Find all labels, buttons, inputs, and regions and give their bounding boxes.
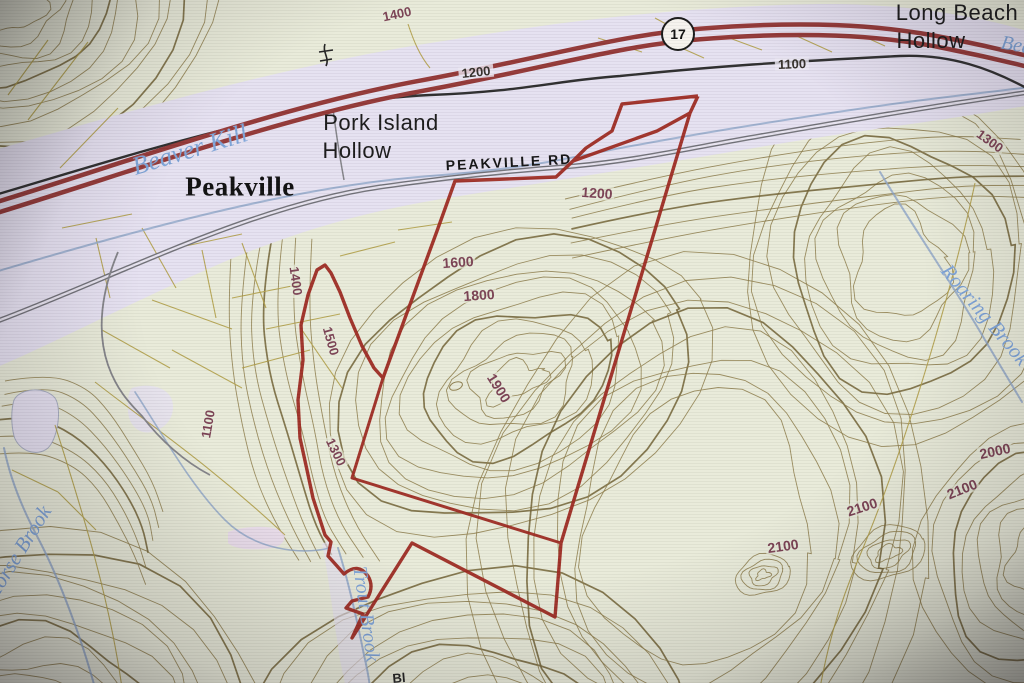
contour-line [0,0,66,47]
contour-line [467,351,566,418]
contour-line [0,595,188,683]
contour-line [527,308,886,683]
contour-line [370,675,559,683]
contour-line [1003,520,1024,594]
contour-line [356,255,674,511]
contour-line [0,436,146,567]
contour-line [867,540,911,569]
contour-line [486,357,551,407]
contour-line [0,527,276,683]
contour-line [805,147,994,365]
contour-line [837,195,970,342]
contour-line [932,442,1024,683]
contour-line [997,508,1024,615]
contour-line [385,277,641,478]
contour-line [380,271,665,499]
contour-line [0,0,92,68]
contour-line [853,204,953,315]
contour-line [0,566,240,683]
contour-line [424,315,612,464]
contour-line [0,0,120,102]
contour-line [912,422,1024,683]
contour-line [0,674,113,683]
contour-line [240,566,689,683]
trout-brook-flat [322,540,369,683]
contour-line [329,228,712,537]
contour-line [575,373,839,683]
contour-line [0,0,74,59]
contour-line [241,237,311,562]
contour-line [265,592,678,683]
contour-line [294,238,364,558]
contour-line [0,637,140,683]
contour-line [341,644,605,683]
contour-line [0,554,250,683]
route-17-number: 17 [670,26,686,42]
contour-knob-1900 [450,382,463,391]
contour-line [977,492,1024,636]
contour-line [751,101,1024,424]
pond [12,390,59,453]
topo-map-canvas [0,0,1024,683]
contour-line [756,569,772,581]
route-17-shield: 17 [661,17,695,51]
contour-line [0,572,220,683]
topo-map-photo: 17 PeakvillePork IslandHollowLong BeachH… [0,0,1024,683]
contour-line [0,0,160,127]
contour-line [476,277,905,683]
contour-line [310,239,380,562]
contour-line [399,292,619,471]
contour-line [505,300,903,683]
contour-line [0,664,126,683]
